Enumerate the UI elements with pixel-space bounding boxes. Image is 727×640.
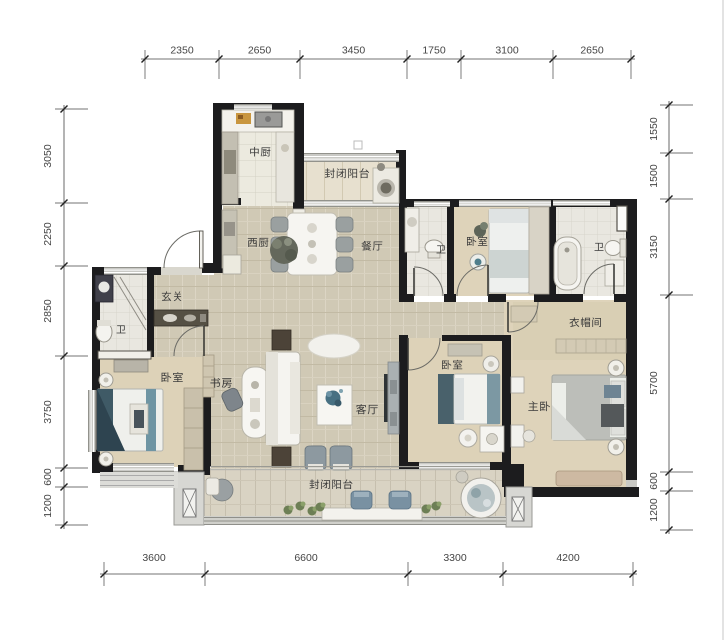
svg-text:1200: 1200 [42,494,54,518]
svg-text:1200: 1200 [648,498,660,522]
svg-text:4200: 4200 [556,552,580,564]
svg-text:3300: 3300 [443,552,467,564]
svg-text:600: 600 [42,468,54,486]
svg-text:2650: 2650 [248,45,272,57]
svg-text:1550: 1550 [648,117,660,141]
svg-text:3450: 3450 [342,45,366,57]
svg-text:1750: 1750 [422,45,446,57]
svg-text:1500: 1500 [648,164,660,188]
svg-text:3600: 3600 [142,552,166,564]
svg-text:2650: 2650 [580,45,604,57]
svg-text:2250: 2250 [42,222,54,246]
svg-text:2350: 2350 [170,45,194,57]
svg-text:3750: 3750 [42,400,54,424]
svg-text:5700: 5700 [648,371,660,395]
svg-text:3100: 3100 [495,45,519,57]
svg-text:6600: 6600 [294,552,318,564]
svg-text:2850: 2850 [42,299,54,323]
svg-text:3050: 3050 [42,144,54,168]
svg-text:3150: 3150 [648,235,660,259]
svg-text:600: 600 [648,472,660,490]
